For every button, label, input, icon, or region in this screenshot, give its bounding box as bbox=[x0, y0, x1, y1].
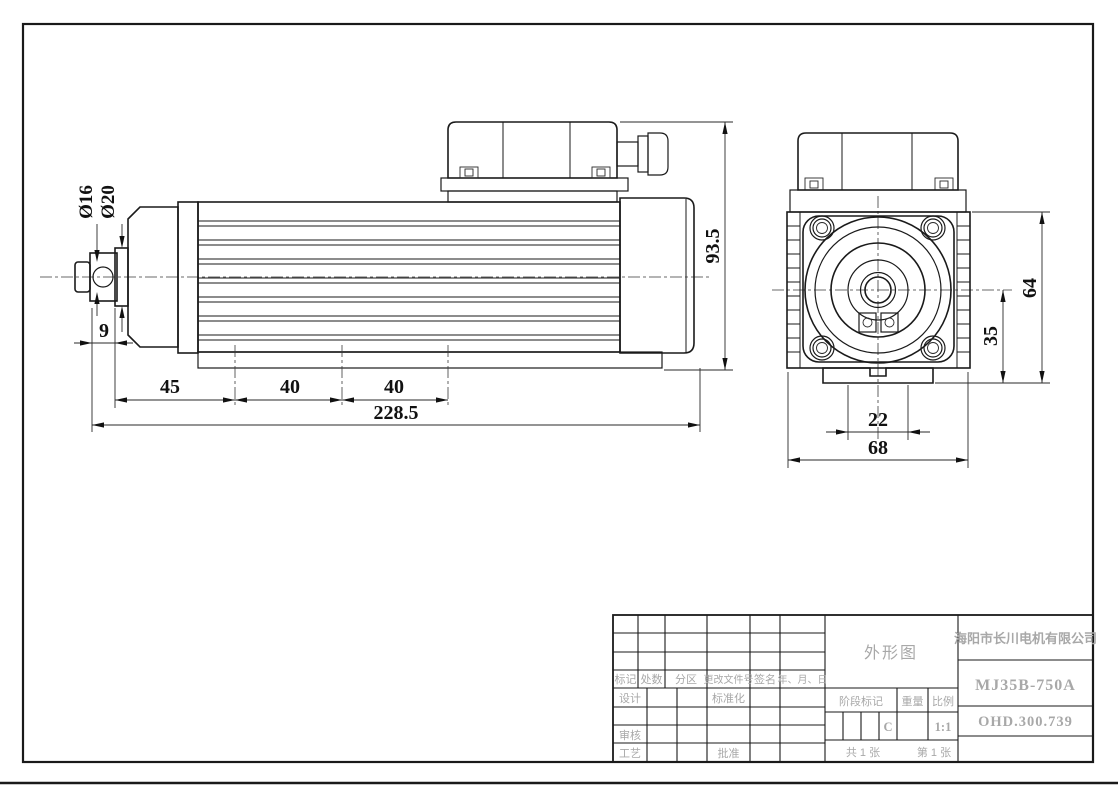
dim-segment-40-1: 40 bbox=[280, 376, 300, 398]
dim-shaft-dia-20: Ø20 bbox=[98, 185, 119, 219]
label-date: 年、月、日 bbox=[778, 673, 828, 686]
label-change-doc-no: 更改文件号 bbox=[704, 673, 754, 686]
label-process: 工艺 bbox=[619, 747, 641, 760]
bolt bbox=[921, 216, 945, 240]
label-weight: 重量 bbox=[902, 694, 924, 708]
brush-tab bbox=[881, 313, 898, 332]
brush-tab bbox=[859, 313, 876, 332]
label-stage-mark: 阶段标记 bbox=[839, 694, 883, 708]
dim-segment-40-2: 40 bbox=[384, 376, 404, 398]
sheet-total: 共 1 张 bbox=[846, 746, 880, 759]
flange-face bbox=[803, 216, 954, 363]
label-signature: 签名 bbox=[754, 672, 776, 686]
label-approve: 批准 bbox=[718, 746, 740, 760]
label-standardization: 标准化 bbox=[712, 691, 745, 705]
bolt bbox=[810, 216, 834, 240]
dim-overall-length: 228.5 bbox=[374, 402, 419, 424]
cable-gland bbox=[617, 133, 668, 175]
dim-flange-height-64: 64 bbox=[1019, 278, 1041, 298]
left-fins bbox=[787, 226, 800, 352]
drawing-canvas: Ø16 Ø20 9 bbox=[0, 0, 1118, 791]
rear-end-cap bbox=[620, 198, 694, 353]
sheet-current: 第 1 张 bbox=[917, 745, 951, 759]
label-revision-mark: 标记 bbox=[615, 672, 637, 686]
terminal-box-screw bbox=[805, 178, 823, 190]
label-scale: 比例 bbox=[932, 694, 954, 708]
dim-body-width-68: 68 bbox=[868, 437, 888, 459]
drawing-number: OHD.300.739 bbox=[978, 714, 1073, 730]
label-review: 审核 bbox=[619, 728, 641, 742]
dim-segment-45: 45 bbox=[160, 376, 180, 398]
terminal-box-screw bbox=[460, 167, 478, 178]
label-design: 设计 bbox=[619, 692, 641, 705]
company-name: 海阳市长川电机有限公司 bbox=[954, 631, 1097, 646]
dim-overall-height: 93.5 bbox=[702, 229, 724, 264]
dim-slot-width-22: 22 bbox=[868, 409, 888, 431]
label-revision-count: 处数 bbox=[641, 673, 663, 686]
mounting-rail bbox=[198, 352, 662, 368]
dim-shaft-dia-16: Ø16 bbox=[76, 185, 97, 219]
bolt bbox=[810, 336, 834, 360]
title-block: 标记 处数 分区 更改文件号 签名 年、月、日 设计 标准化 审核 工艺 批准 … bbox=[613, 615, 1097, 762]
terminal-box-screw bbox=[592, 167, 610, 178]
label-revision-zone: 分区 bbox=[675, 673, 697, 686]
bolt bbox=[921, 336, 945, 360]
drawing-sheet: Ø16 Ø20 9 bbox=[0, 0, 1118, 791]
right-fins bbox=[957, 226, 970, 352]
front-end-bell bbox=[178, 202, 198, 353]
terminal-box-side bbox=[441, 122, 668, 202]
sheet-border bbox=[23, 24, 1093, 762]
model-number: MJ35B-750A bbox=[975, 677, 1076, 694]
side-view: Ø16 Ø20 9 bbox=[40, 122, 733, 432]
dim-center-to-base-35: 35 bbox=[980, 326, 1002, 346]
terminal-box-screw bbox=[935, 178, 953, 190]
drawing-title: 外形图 bbox=[864, 644, 918, 662]
scale-value: 1:1 bbox=[935, 720, 952, 734]
dim-shaft-protrusion-9: 9 bbox=[99, 320, 109, 342]
stage-mark-value: C bbox=[883, 720, 892, 734]
front-view: 64 35 22 68 bbox=[772, 133, 1050, 468]
